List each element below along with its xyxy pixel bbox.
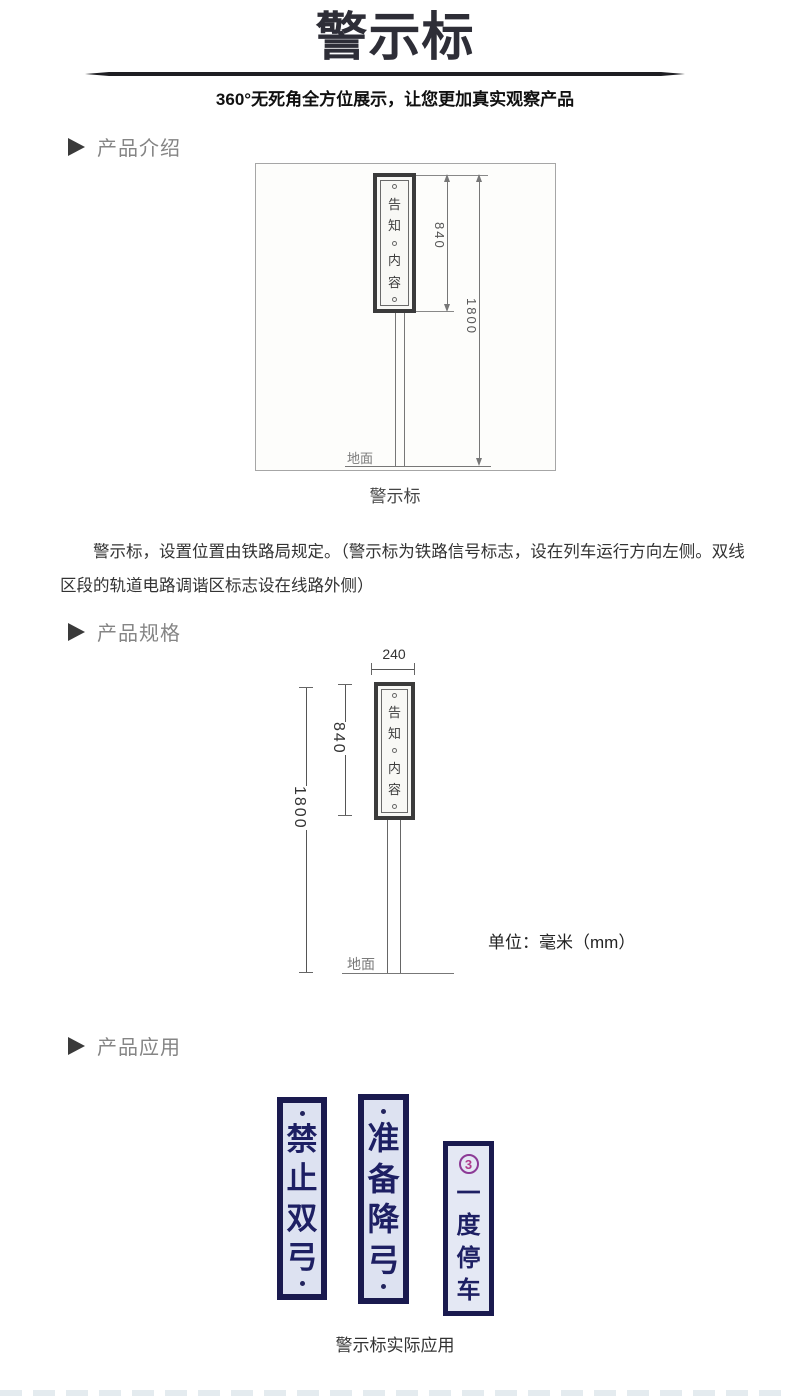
sign-char: 弓	[367, 1244, 399, 1276]
sign-post-line	[400, 820, 401, 973]
sign-char: 度	[457, 1214, 481, 1238]
photo-sign-jinzhishuanggong: 禁 止 双 弓	[277, 1097, 327, 1300]
sign-char: 备	[367, 1163, 399, 1195]
sign-char: 禁	[287, 1124, 318, 1155]
panel-char: 容	[388, 783, 401, 796]
panel-char: 内	[388, 762, 401, 775]
dim-label-840: 840	[329, 722, 347, 755]
sign-char: 双	[287, 1203, 318, 1234]
dim-cap	[338, 815, 352, 816]
dim-cap	[299, 687, 313, 688]
mounting-dot-icon	[381, 1284, 386, 1289]
ground-label: 地面	[347, 954, 375, 974]
mounting-dot-icon	[300, 1111, 305, 1116]
mounting-hole-icon	[392, 184, 397, 189]
dim-label-1800: 1800	[290, 786, 308, 830]
section-app-header: 产品应用	[68, 1031, 181, 1060]
intro-diagram-sign-panel: 告 知 内 容	[373, 173, 416, 313]
dim-arrow-icon	[444, 174, 450, 182]
intro-diagram-caption: 警示标	[0, 482, 790, 507]
spec-diagram-sign-panel: 告 知 内 容	[374, 682, 415, 820]
dim-line-840	[447, 178, 448, 308]
sign-post-line	[404, 313, 405, 466]
dim-tick	[414, 663, 415, 675]
dim-label-1800: 1800	[464, 298, 479, 335]
section-arrow-icon	[68, 623, 85, 641]
ground-label: 地面	[347, 448, 373, 467]
mounting-dot-icon	[300, 1281, 305, 1286]
page-subtitle: 360°无死角全方位展示，让您更加真实观察产品	[0, 85, 790, 110]
panel-char: 知	[388, 219, 401, 232]
sign-post-line	[395, 313, 396, 466]
dim-tick	[371, 663, 372, 675]
circled-number-badge: 3	[459, 1154, 479, 1174]
panel-char: 告	[388, 198, 401, 211]
dim-arrow-icon	[476, 458, 482, 466]
sign-char: 车	[457, 1279, 481, 1303]
dim-arrow-icon	[476, 174, 482, 182]
panel-char: 容	[388, 276, 401, 289]
mounting-dot-icon	[381, 1109, 386, 1114]
sign-char: 止	[287, 1163, 318, 1194]
section-app-label: 产品应用	[97, 1031, 181, 1060]
sign-char: 准	[367, 1122, 399, 1154]
unit-note: 单位：毫米（mm）	[488, 928, 635, 953]
dim-line-240	[371, 669, 415, 670]
page-title: 警示标	[0, 12, 790, 64]
panel-char: 内	[388, 254, 401, 267]
photo-sign-zhunbeijianggong: 准 备 降 弓	[358, 1094, 409, 1304]
intro-sign-panel-inner: 告 知 内 容	[380, 180, 409, 306]
dim-line-1800	[306, 687, 307, 973]
photo-sign-yidutingche: 3 一 度 停 车	[443, 1141, 494, 1316]
section-spec-label: 产品规格	[97, 617, 181, 646]
dim-arrow-icon	[444, 304, 450, 312]
sign-char: 一	[457, 1182, 481, 1206]
sign-char: 降	[367, 1203, 399, 1235]
section-spec-header: 产品规格	[68, 617, 181, 646]
panel-char: 告	[388, 706, 401, 719]
dim-label-840: 840	[432, 222, 447, 250]
sign-char: 停	[457, 1247, 481, 1271]
sign-post-line	[387, 820, 388, 973]
dim-cap	[299, 972, 313, 973]
mounting-hole-icon	[392, 748, 397, 753]
title-divider	[85, 72, 685, 76]
sign-char: 弓	[287, 1242, 318, 1273]
bottom-dashed-strip	[0, 1390, 790, 1396]
product-description-page: 警示标 360°无死角全方位展示，让您更加真实观察产品 产品介绍 告 知 内 容…	[0, 0, 790, 1398]
application-caption: 警示标实际应用	[0, 1331, 790, 1356]
mounting-hole-icon	[392, 297, 397, 302]
section-arrow-icon	[68, 138, 85, 156]
spec-sign-panel-inner: 告 知 内 容	[381, 689, 408, 813]
mounting-hole-icon	[392, 241, 397, 246]
dim-label-240: 240	[368, 646, 420, 662]
panel-char: 知	[388, 727, 401, 740]
section-intro-label: 产品介绍	[97, 132, 181, 161]
mounting-hole-icon	[392, 693, 397, 698]
section-arrow-icon	[68, 1037, 85, 1055]
dim-cap	[338, 684, 352, 685]
mounting-hole-icon	[392, 804, 397, 809]
section-intro-header: 产品介绍	[68, 132, 181, 161]
intro-paragraph: 警示标，设置位置由铁路局规定。（警示标为铁路信号标志，设在列车运行方向左侧。双线…	[60, 535, 750, 603]
dim-line-1800	[479, 178, 480, 462]
